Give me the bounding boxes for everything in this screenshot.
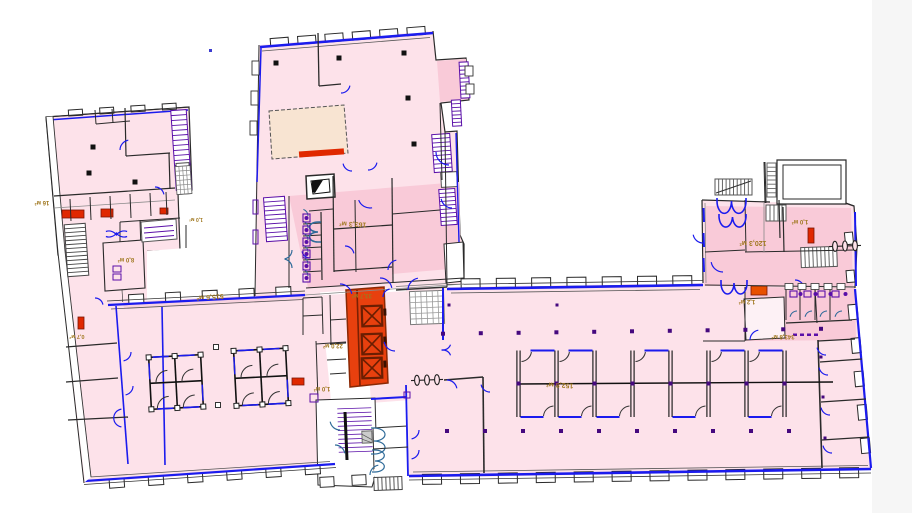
- svg-text:33,7 м²: 33,7 м²: [352, 292, 372, 299]
- svg-text:0,7 м²: 0,7 м²: [69, 333, 84, 340]
- svg-text:1,0 м²: 1,0 м²: [792, 218, 808, 225]
- svg-text:1,0 м²: 1,0 м²: [189, 216, 203, 222]
- svg-text:343,8 м²: 343,8 м²: [771, 333, 794, 340]
- svg-text:1,0 м²: 1,0 м²: [314, 385, 330, 392]
- svg-text:120,3 м²: 120,3 м²: [739, 239, 767, 246]
- svg-text:1,2 м²: 1,2 м²: [739, 298, 755, 305]
- svg-text:8,0 м²: 8,0 м²: [118, 256, 134, 263]
- svg-text:16 м²: 16 м²: [35, 199, 50, 206]
- svg-text:152,8 м²: 152,8 м²: [546, 380, 574, 388]
- svg-text:22,0 м²: 22,0 м²: [323, 342, 343, 349]
- svg-text:163,3 м²: 163,3 м²: [339, 219, 367, 227]
